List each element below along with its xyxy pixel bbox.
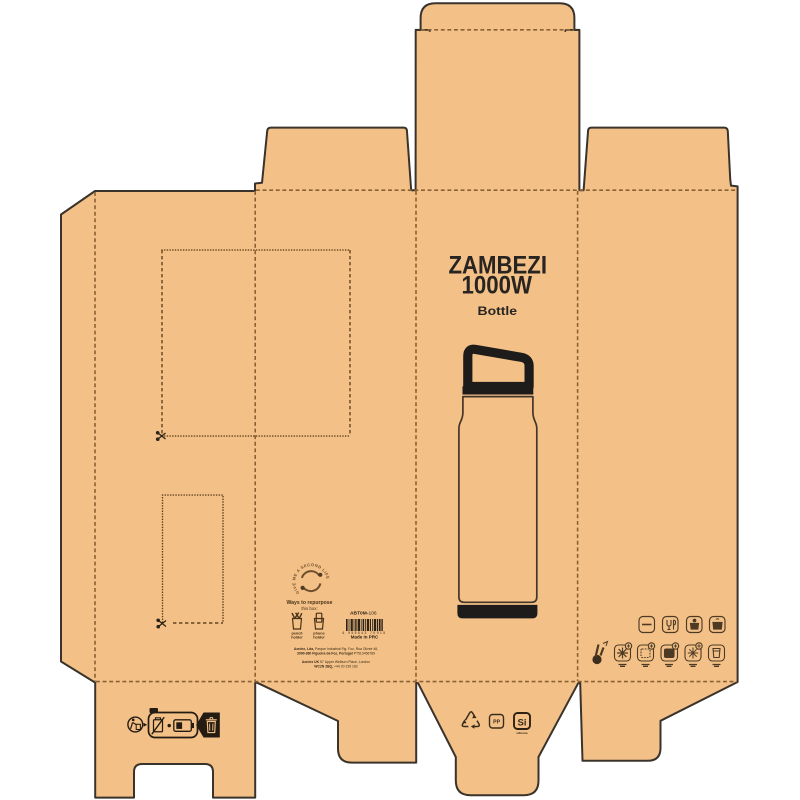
svg-text:holder: holder (291, 636, 303, 640)
svg-text:3090-380 Figueira da Foz, Port: 3090-380 Figueira da Foz, Portugal PT513… (297, 652, 375, 656)
svg-text:WC2N 2BQ, +44 20 239 182: WC2N 2BQ, +44 20 239 182 (314, 665, 358, 669)
svg-text:Ways to repurpose: Ways to repurpose (287, 600, 333, 606)
svg-text:Aonlex, Lda, Parque Industrial: Aonlex, Lda, Parque Industrial Fig. Foz,… (294, 647, 378, 651)
svg-text:Si: Si (518, 718, 527, 729)
svg-text:Aonlex UK 57 Upper Welburn Pla: Aonlex UK 57 Upper Welburn Place, London (302, 660, 370, 664)
svg-text:1000W: 1000W (462, 272, 533, 300)
svg-text:PP: PP (493, 720, 500, 726)
svg-text:this box:: this box: (301, 606, 317, 611)
svg-text:silicone: silicone (516, 731, 528, 735)
svg-text:Bottle: Bottle (478, 304, 518, 318)
svg-text:Made in PRC: Made in PRC (351, 635, 379, 640)
svg-text:holder: holder (313, 636, 325, 640)
svg-text:ABT0M-106: ABT0M-106 (350, 611, 377, 617)
